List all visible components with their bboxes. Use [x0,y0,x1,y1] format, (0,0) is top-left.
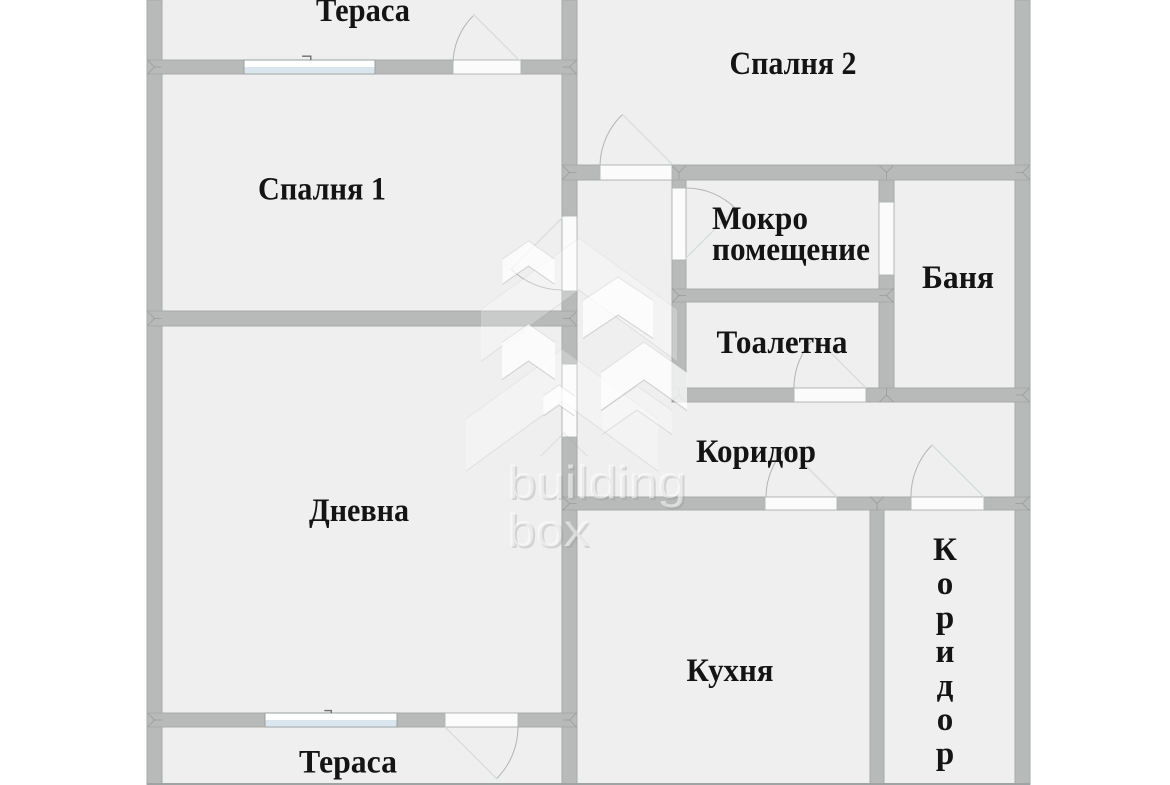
svg-text:building: building [507,456,686,508]
svg-text:Спалня 2: Спалня 2 [730,46,857,82]
svg-text:Тераса: Тераса [316,0,410,29]
svg-text:о: о [937,702,954,738]
svg-text:К: К [933,532,957,568]
svg-text:Кухня: Кухня [687,653,774,689]
svg-text:о: о [937,566,954,602]
svg-text:д: д [937,668,954,704]
svg-text:Спалня 1: Спалня 1 [258,172,386,208]
svg-text:box: box [507,504,589,556]
svg-text:и: и [935,634,954,670]
svg-text:р: р [936,736,954,772]
svg-text:Коридор: Коридор [696,434,816,470]
svg-text:Баня: Баня [922,260,994,296]
svg-text:Тоалетна: Тоалетна [717,325,848,361]
svg-text:Тераса: Тераса [299,745,397,781]
svg-text:р: р [936,600,954,636]
svg-text:Дневна: Дневна [309,493,409,529]
svg-text:помещение: помещение [712,232,870,268]
